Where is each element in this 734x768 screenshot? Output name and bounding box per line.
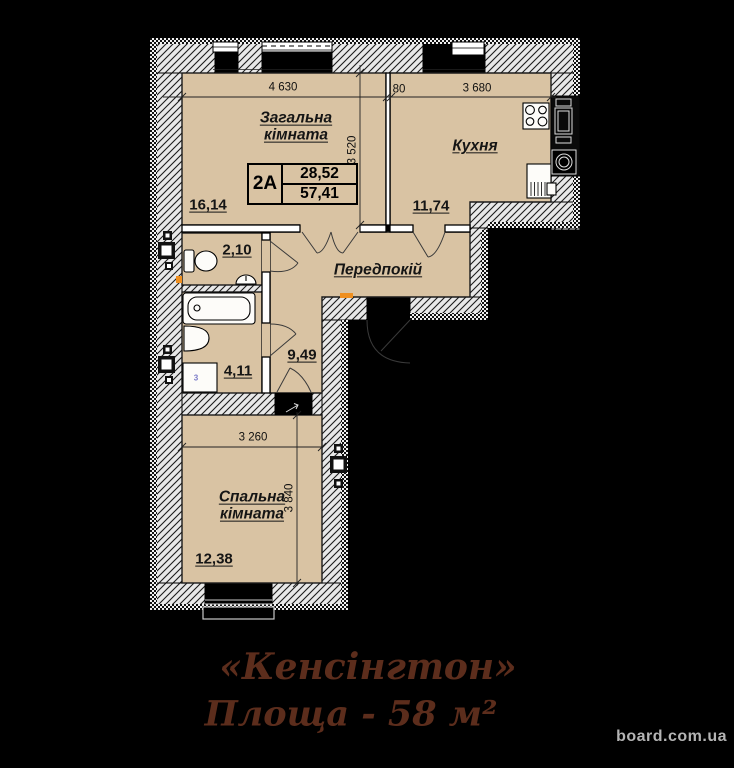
dim-living-depth: 3 520 (347, 136, 360, 165)
project-name: «Кенсінгтон» (219, 646, 516, 688)
room-area-living: 16,14 (189, 198, 227, 215)
washing-machine-icon (183, 363, 217, 392)
room-area-bath: 4,11 (224, 364, 252, 381)
watermark: board.com.ua (616, 728, 727, 746)
unit-info-table: 2A 28,52 57,41 (247, 163, 358, 205)
project-area-line: Площа - 58 м² (205, 694, 498, 735)
dim-kitchen-width: 3 680 (463, 83, 492, 96)
room-area-kitchen: 11,74 (413, 199, 450, 216)
washer-capacity-label: 3 (194, 375, 198, 384)
radiator-mark (176, 276, 182, 283)
room-area-bedroom: 12,38 (195, 552, 233, 569)
floor-plan-page: Загальна кімната 16,14 Кухня 11,74 Перед… (0, 0, 734, 768)
room-area-corridor: 9,49 (287, 348, 316, 365)
toilet-icon (184, 250, 217, 272)
unit-total-area: 57,41 (283, 185, 356, 203)
unit-number: 2A (249, 165, 283, 203)
vent-shaft (551, 96, 580, 176)
room-area-wc: 2,10 (222, 243, 251, 260)
room-label-living: Загальна кімната (251, 110, 341, 145)
stove-icon (523, 103, 549, 129)
room-label-hall: Передпокій (334, 261, 422, 278)
washer-drum-icon (552, 150, 576, 174)
bedroom-doorway (275, 393, 312, 415)
dim-living-width: 4 630 (269, 82, 298, 95)
bathtub-icon (183, 293, 255, 324)
unit-areas: 28,52 57,41 (283, 165, 356, 203)
dim-wall-thickness: 80 (393, 84, 406, 97)
dim-bedroom-width: 3 260 (239, 432, 268, 445)
dim-bedroom-depth: 3 840 (284, 484, 297, 513)
room-label-kitchen: Кухня (452, 137, 497, 154)
radiator-mark-2 (340, 293, 353, 298)
unit-living-area: 28,52 (283, 165, 356, 185)
